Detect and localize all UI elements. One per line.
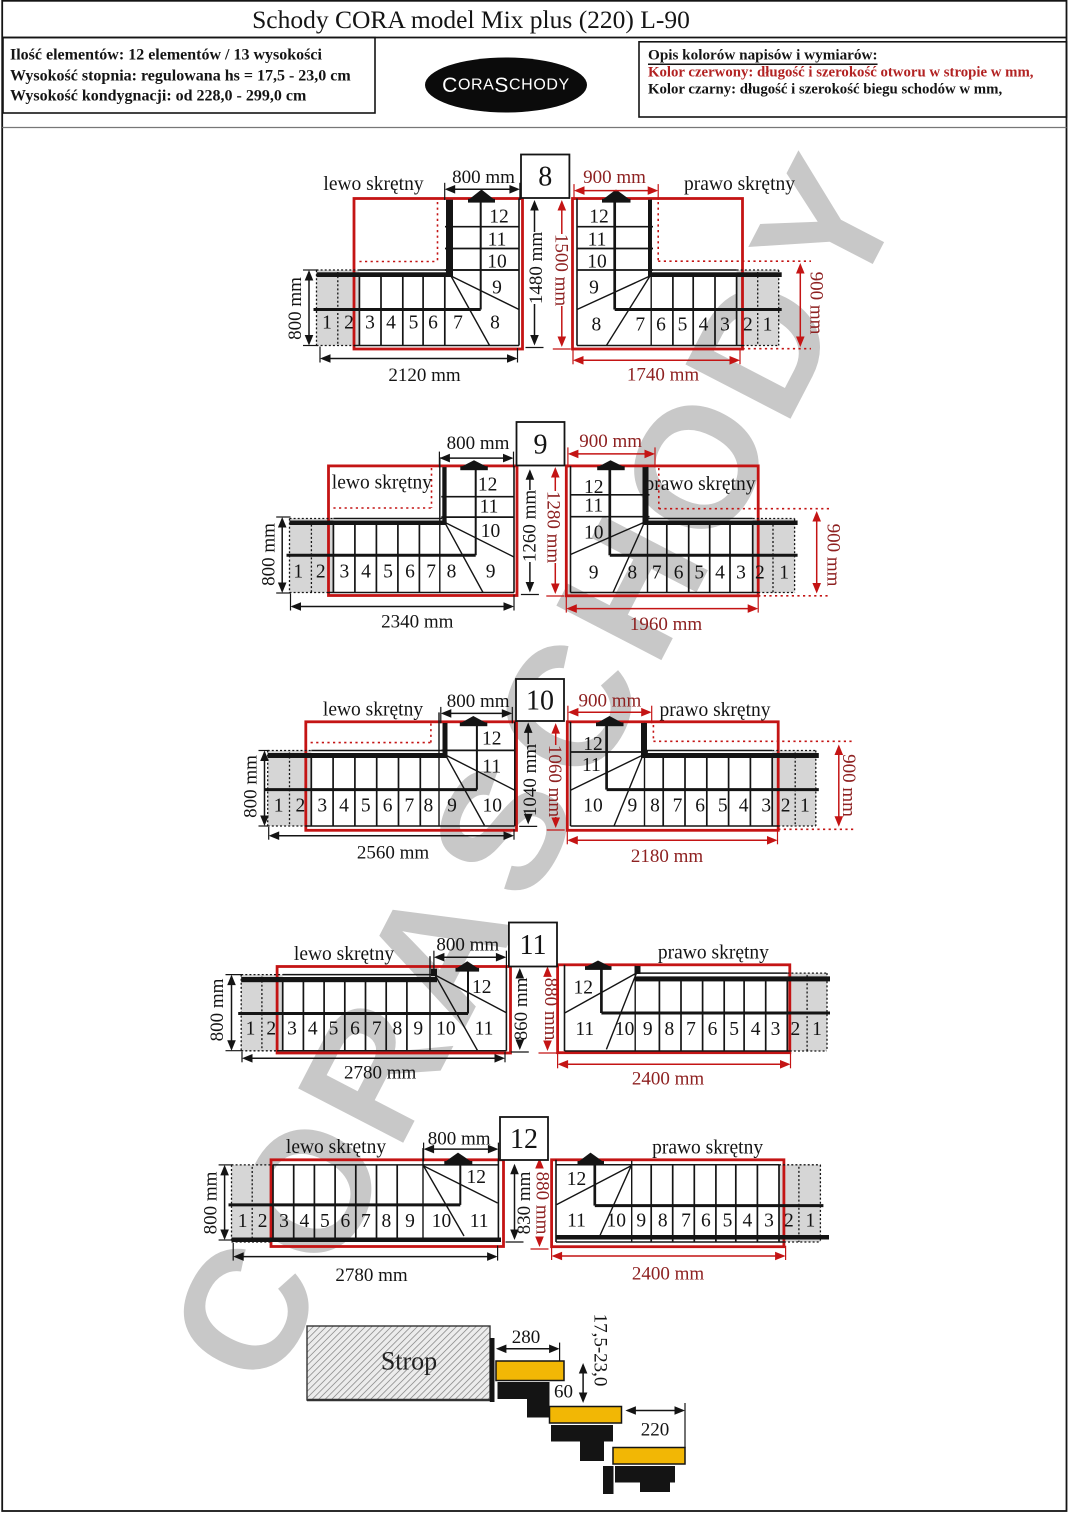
svg-text:8: 8 [393, 1018, 403, 1039]
svg-text:4: 4 [361, 562, 371, 583]
svg-text:8: 8 [627, 562, 637, 583]
svg-text:8: 8 [382, 1211, 392, 1232]
svg-text:4: 4 [308, 1018, 318, 1039]
svg-text:800 mm: 800 mm [241, 755, 262, 818]
svg-text:8: 8 [665, 1019, 675, 1040]
svg-text:9: 9 [589, 278, 599, 299]
svg-text:11: 11 [575, 1019, 594, 1040]
svg-text:2: 2 [266, 1018, 276, 1039]
svg-text:800 mm: 800 mm [259, 523, 280, 586]
svg-text:1: 1 [246, 1018, 256, 1039]
svg-text:12: 12 [589, 207, 609, 228]
svg-text:6: 6 [708, 1019, 718, 1040]
svg-text:1: 1 [238, 1211, 248, 1232]
svg-text:10: 10 [607, 1211, 627, 1232]
svg-text:880 mm: 880 mm [532, 1172, 553, 1235]
svg-text:5: 5 [320, 1211, 330, 1232]
svg-text:2120 mm: 2120 mm [388, 365, 461, 386]
svg-text:9: 9 [636, 1211, 646, 1232]
svg-text:2: 2 [344, 313, 354, 334]
svg-text:8: 8 [447, 562, 457, 583]
svg-text:3: 3 [287, 1018, 297, 1039]
svg-text:9: 9 [413, 1018, 423, 1039]
svg-text:5: 5 [729, 1019, 739, 1040]
svg-text:12: 12 [510, 1124, 538, 1155]
svg-text:4: 4 [715, 562, 725, 583]
svg-text:4: 4 [739, 795, 749, 816]
svg-text:280: 280 [512, 1327, 541, 1348]
svg-text:Schody CORA model Mix plus (22: Schody CORA model Mix plus (220) L-90 [252, 5, 690, 34]
svg-text:17,5-23,0: 17,5-23,0 [590, 1314, 611, 1387]
svg-text:prawo skrętny: prawo skrętny [652, 1138, 763, 1159]
svg-text:7: 7 [681, 1211, 691, 1232]
svg-text:800 mm: 800 mm [452, 167, 515, 188]
svg-text:4: 4 [699, 315, 709, 336]
svg-text:2400 mm: 2400 mm [632, 1264, 705, 1285]
svg-text:9: 9 [447, 796, 457, 817]
svg-text:2780 mm: 2780 mm [335, 1265, 408, 1286]
svg-text:1: 1 [806, 1211, 816, 1232]
svg-text:6: 6 [405, 562, 415, 583]
svg-text:5: 5 [723, 1211, 733, 1232]
svg-text:9: 9 [405, 1211, 415, 1232]
svg-text:Kolor czarny: długość i szero: Kolor czarny: długość i szerokość biegu … [648, 82, 1002, 98]
svg-text:860 mm: 860 mm [511, 977, 532, 1040]
svg-text:3: 3 [720, 315, 730, 336]
svg-text:11: 11 [567, 1211, 586, 1232]
svg-text:Kolor czerwony: długość i sze: Kolor czerwony: długość i szerokość otwo… [648, 65, 1034, 81]
svg-text:6: 6 [350, 1018, 360, 1039]
svg-text:900 mm: 900 mm [579, 431, 642, 452]
svg-text:2780 mm: 2780 mm [344, 1063, 417, 1084]
svg-text:1: 1 [322, 313, 332, 334]
svg-text:Wysokość kondygnacji: od 228,0: Wysokość kondygnacji: od 228,0 - 299,0 c… [10, 88, 307, 105]
svg-text:8: 8 [490, 313, 500, 334]
svg-text:2: 2 [784, 1211, 794, 1232]
svg-text:8: 8 [592, 315, 602, 336]
svg-text:10: 10 [584, 522, 604, 543]
svg-text:12: 12 [482, 728, 502, 749]
svg-text:lewo skrętny: lewo skrętny [294, 944, 394, 965]
svg-text:11: 11 [582, 755, 601, 776]
svg-text:900 mm: 900 mm [578, 691, 641, 712]
svg-text:4: 4 [386, 313, 396, 334]
svg-text:Wysokość stopnia: regulowana: Wysokość stopnia: regulowana hs = 17,5 -… [10, 68, 351, 85]
svg-text:220: 220 [641, 1420, 670, 1441]
svg-text:2560 mm: 2560 mm [357, 843, 430, 864]
svg-text:800 mm: 800 mm [447, 433, 510, 454]
svg-text:5: 5 [694, 562, 704, 583]
svg-text:11: 11 [584, 495, 603, 516]
svg-text:3: 3 [761, 795, 771, 816]
svg-text:4: 4 [743, 1211, 753, 1232]
svg-text:2340 mm: 2340 mm [381, 612, 454, 633]
svg-text:1: 1 [779, 562, 789, 583]
svg-text:11: 11 [482, 757, 501, 778]
svg-text:800 mm: 800 mm [207, 978, 228, 1041]
svg-text:2: 2 [791, 1019, 801, 1040]
svg-text:7: 7 [361, 1211, 371, 1232]
svg-text:prawo skrętny: prawo skrętny [658, 943, 769, 964]
svg-text:12: 12 [467, 1167, 487, 1188]
svg-text:3: 3 [365, 313, 375, 334]
svg-text:7: 7 [635, 315, 645, 336]
svg-text:2: 2 [316, 562, 326, 583]
svg-text:5: 5 [383, 562, 393, 583]
svg-text:1060 mm: 1060 mm [544, 745, 565, 818]
svg-text:9: 9 [589, 562, 599, 583]
svg-text:5: 5 [678, 315, 688, 336]
svg-text:8: 8 [650, 795, 660, 816]
svg-text:6: 6 [674, 562, 684, 583]
svg-text:900 mm: 900 mm [822, 524, 843, 587]
svg-text:1260 mm: 1260 mm [520, 490, 541, 563]
svg-text:9: 9 [486, 562, 496, 583]
svg-text:9: 9 [628, 795, 638, 816]
svg-text:5: 5 [329, 1018, 339, 1039]
svg-text:1480 mm: 1480 mm [526, 232, 547, 305]
svg-text:3: 3 [340, 562, 350, 583]
svg-text:900 mm: 900 mm [838, 754, 859, 817]
svg-text:10: 10 [483, 796, 503, 817]
svg-text:800 mm: 800 mm [428, 1129, 491, 1150]
svg-text:7: 7 [426, 562, 436, 583]
svg-text:lewo skrętny: lewo skrętny [323, 700, 423, 721]
svg-text:6: 6 [656, 315, 666, 336]
svg-text:10: 10 [615, 1019, 635, 1040]
svg-text:prawo skrętny: prawo skrętny [644, 474, 755, 495]
svg-text:60: 60 [554, 1382, 573, 1403]
svg-text:1: 1 [293, 562, 303, 583]
svg-text:5: 5 [409, 313, 419, 334]
svg-text:CORASCHODY: CORASCHODY [442, 74, 570, 97]
svg-text:11: 11 [480, 497, 499, 518]
svg-text:8: 8 [424, 796, 434, 817]
svg-text:800 mm: 800 mm [436, 934, 499, 955]
svg-text:12: 12 [489, 207, 509, 228]
svg-text:prawo skrętny: prawo skrętny [659, 700, 770, 721]
svg-text:lewo skrętny: lewo skrętny [286, 1137, 386, 1158]
svg-text:10: 10 [432, 1211, 452, 1232]
svg-text:7: 7 [686, 1019, 696, 1040]
svg-text:8: 8 [538, 162, 552, 193]
svg-text:11: 11 [470, 1211, 489, 1232]
svg-text:3: 3 [736, 562, 746, 583]
svg-text:12: 12 [583, 734, 603, 755]
svg-text:10: 10 [583, 795, 603, 816]
svg-text:2: 2 [296, 796, 306, 817]
svg-text:9: 9 [534, 429, 548, 460]
svg-text:Ilość elementów: 12 elementów: Ilość elementów: 12 elementów / 13 wysok… [10, 47, 323, 64]
svg-text:10: 10 [587, 252, 607, 273]
svg-text:prawo skrętny: prawo skrętny [684, 174, 795, 195]
svg-text:10: 10 [487, 252, 507, 273]
svg-text:1: 1 [800, 795, 810, 816]
svg-text:1: 1 [812, 1019, 822, 1040]
svg-text:11: 11 [488, 230, 507, 251]
svg-text:2180 mm: 2180 mm [631, 846, 704, 867]
svg-text:1280 mm: 1280 mm [543, 491, 564, 564]
svg-text:12: 12 [567, 1169, 587, 1190]
svg-text:10: 10 [436, 1018, 456, 1039]
svg-text:2: 2 [743, 315, 753, 336]
svg-text:4: 4 [751, 1019, 761, 1040]
svg-text:7: 7 [372, 1018, 382, 1039]
svg-text:6: 6 [701, 1211, 711, 1232]
svg-text:11: 11 [520, 930, 547, 961]
svg-text:10: 10 [481, 521, 501, 542]
svg-text:3: 3 [771, 1019, 781, 1040]
svg-text:7: 7 [453, 313, 463, 334]
svg-text:lewo skrętny: lewo skrętny [323, 174, 423, 195]
svg-text:6: 6 [341, 1211, 351, 1232]
svg-text:1: 1 [274, 796, 284, 817]
svg-text:900 mm: 900 mm [806, 272, 827, 335]
svg-text:3: 3 [279, 1211, 289, 1232]
svg-text:Strop: Strop [381, 1347, 437, 1376]
svg-text:2: 2 [258, 1211, 268, 1232]
svg-text:7: 7 [405, 796, 415, 817]
svg-text:800 mm: 800 mm [447, 691, 510, 712]
svg-text:6: 6 [428, 313, 438, 334]
svg-text:12: 12 [472, 977, 492, 998]
svg-text:800 mm: 800 mm [285, 277, 306, 340]
svg-text:5: 5 [718, 795, 728, 816]
svg-text:5: 5 [361, 796, 371, 817]
svg-text:Opis kolorów napisów i wymiaró: Opis kolorów napisów i wymiarów: [648, 47, 878, 64]
svg-text:7: 7 [652, 562, 662, 583]
svg-text:4: 4 [339, 796, 349, 817]
svg-text:1500 mm: 1500 mm [551, 234, 572, 307]
svg-text:11: 11 [475, 1018, 494, 1039]
svg-text:900 mm: 900 mm [583, 167, 646, 188]
svg-text:3: 3 [764, 1211, 774, 1232]
svg-text:lewo skrętny: lewo skrętny [332, 473, 432, 494]
svg-text:9: 9 [643, 1019, 653, 1040]
svg-text:8: 8 [658, 1211, 668, 1232]
svg-text:1040 mm: 1040 mm [520, 744, 541, 817]
svg-text:2400 mm: 2400 mm [632, 1069, 705, 1090]
svg-text:2: 2 [781, 795, 791, 816]
svg-text:800 mm: 800 mm [201, 1171, 222, 1234]
svg-text:3: 3 [317, 796, 327, 817]
svg-text:10: 10 [526, 686, 554, 717]
svg-text:6: 6 [695, 795, 705, 816]
svg-text:6: 6 [383, 796, 393, 817]
svg-text:7: 7 [673, 795, 683, 816]
svg-text:1: 1 [763, 315, 773, 336]
svg-text:12: 12 [478, 475, 498, 496]
svg-text:9: 9 [492, 278, 502, 299]
svg-text:12: 12 [573, 978, 593, 999]
svg-text:2: 2 [755, 562, 765, 583]
svg-text:1740 mm: 1740 mm [627, 365, 700, 386]
svg-text:11: 11 [588, 230, 607, 251]
svg-text:4: 4 [300, 1211, 310, 1232]
svg-text:1960 mm: 1960 mm [630, 614, 703, 635]
